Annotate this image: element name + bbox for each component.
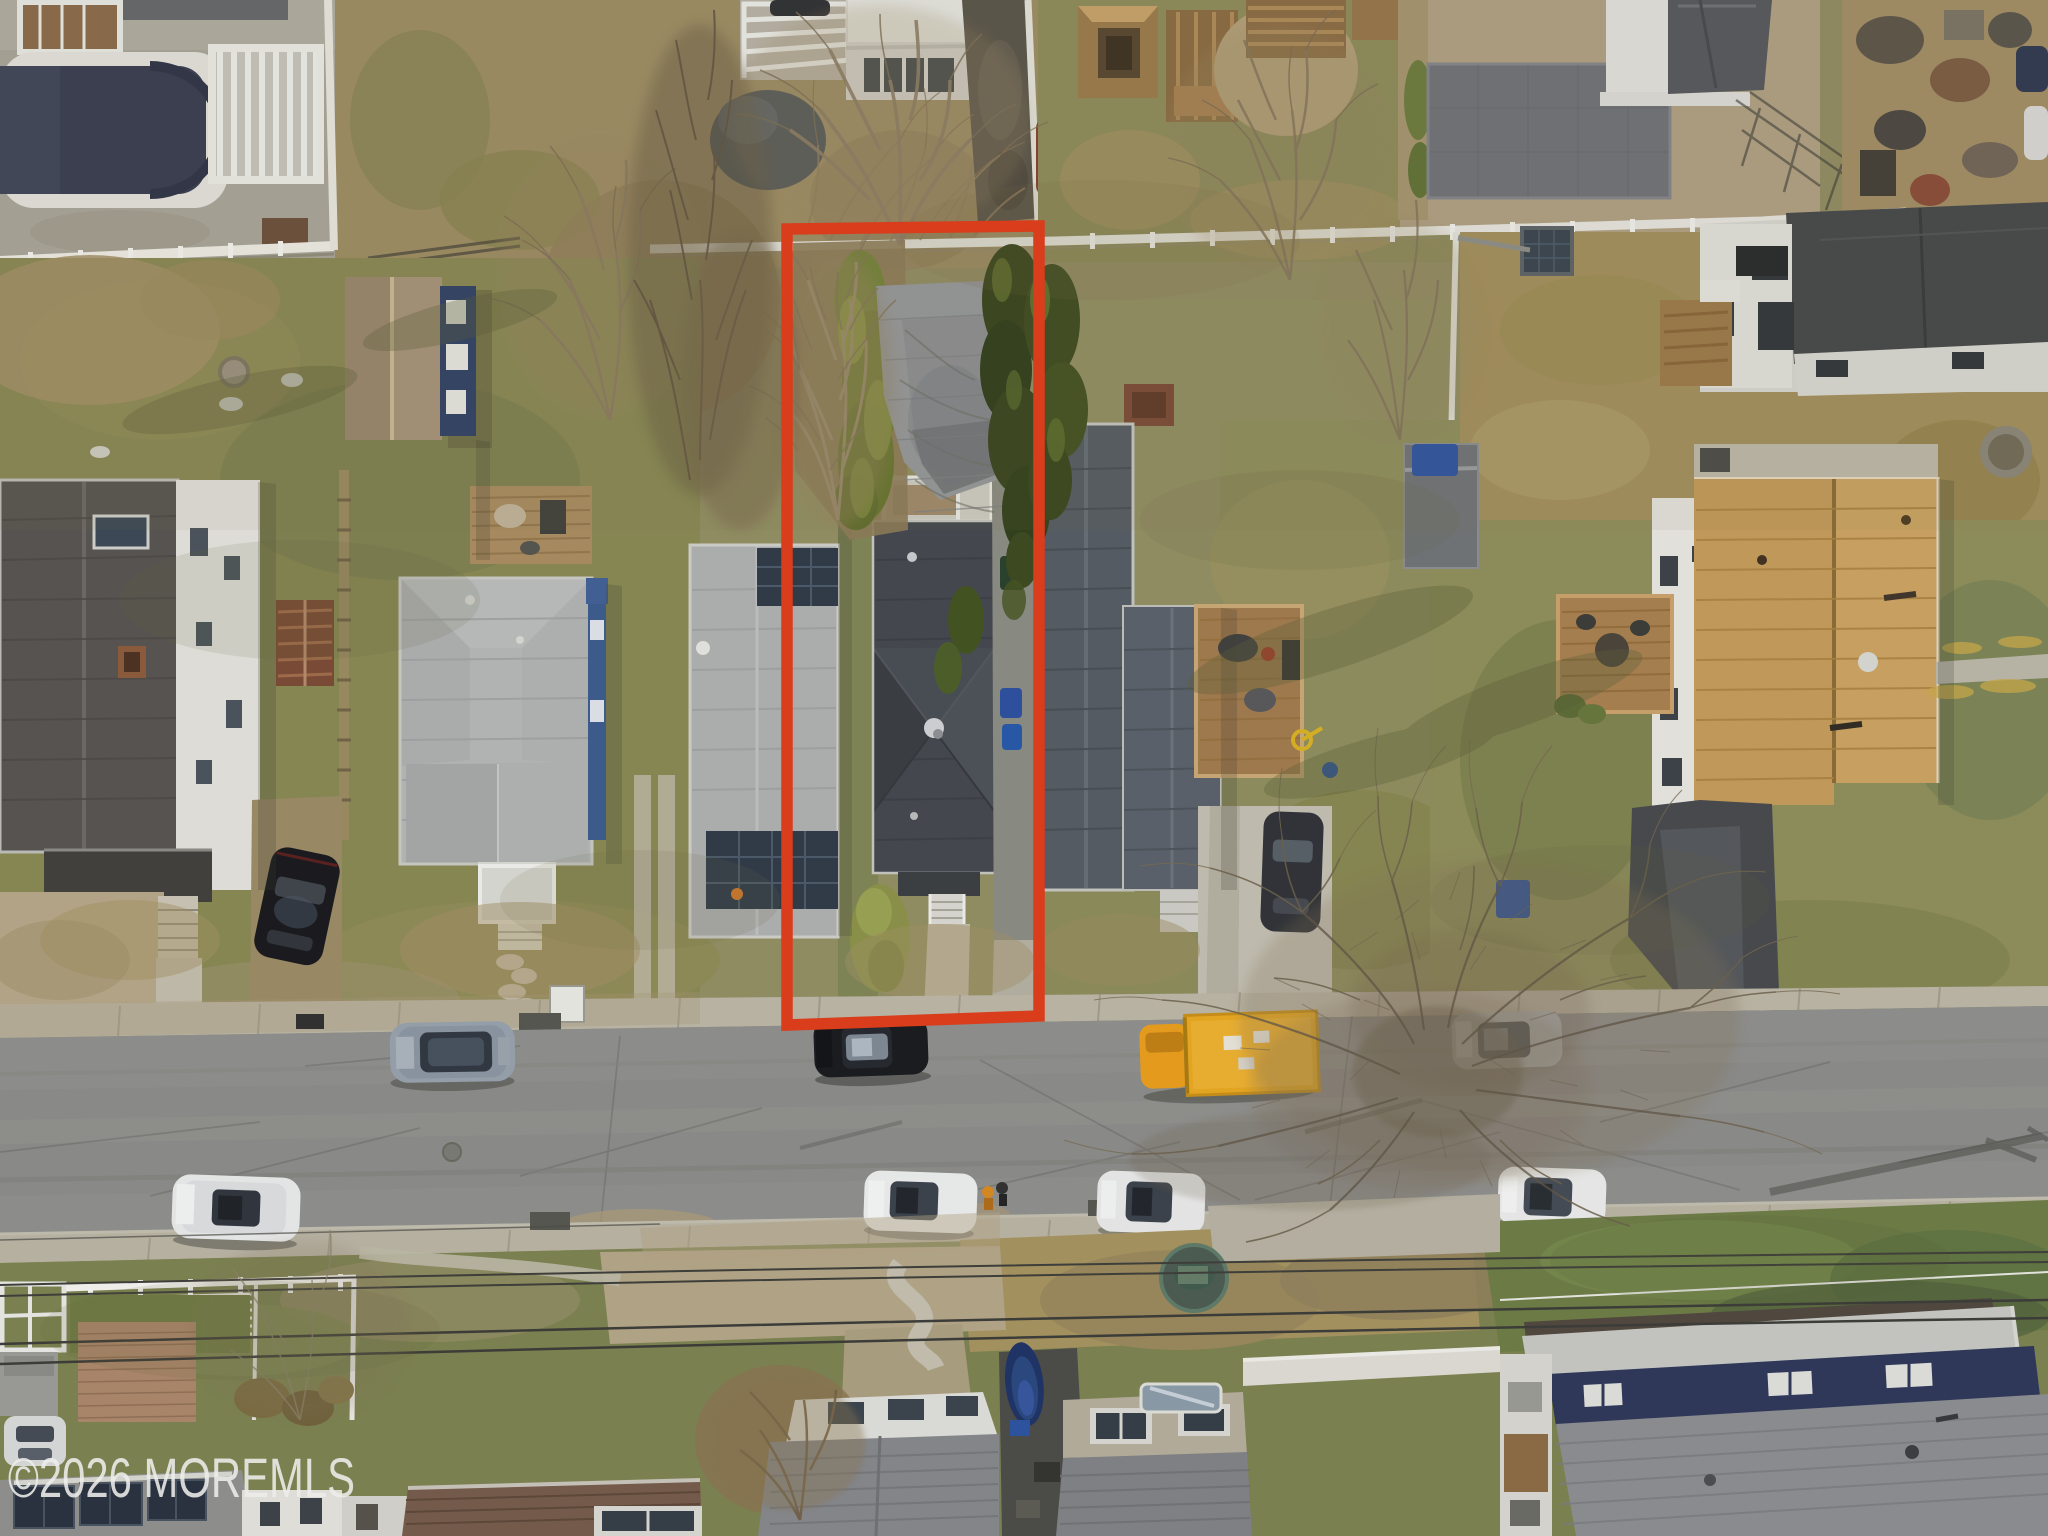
svg-text:©2026 MOREMLS: ©2026 MOREMLS: [8, 1446, 355, 1509]
